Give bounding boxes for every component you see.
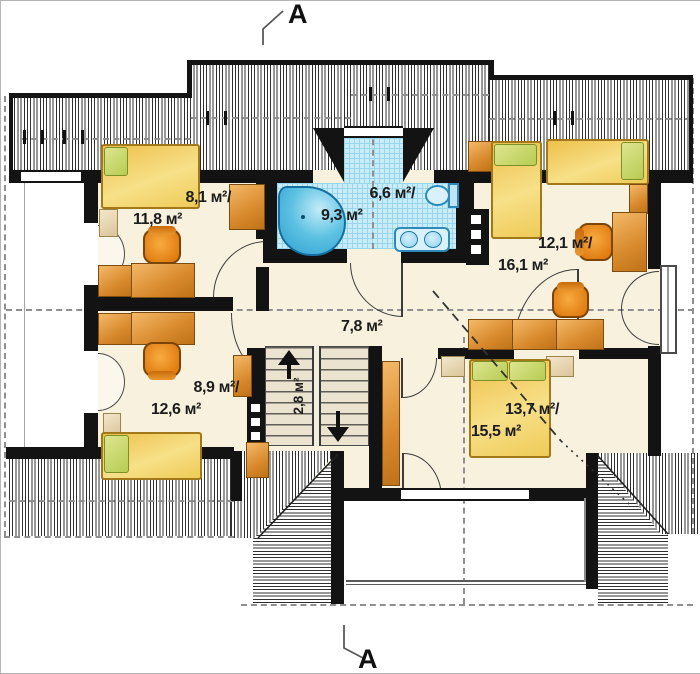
area-label-master-bedroom: 13,7 м²/ 15,5 м² — [469, 399, 563, 442]
area-label-room-top-right: 12,1 м²/ 16,1 м² — [496, 233, 596, 276]
area-value: 8,1 м²/ — [131, 187, 235, 209]
roof-line-dashed-1 — [21, 138, 191, 140]
roof-edge — [9, 93, 13, 171]
wardrobe-tall — [382, 361, 400, 486]
stairs-down-stem — [336, 411, 340, 427]
cabinet — [468, 141, 493, 172]
toilet — [425, 185, 450, 206]
wall-east — [648, 346, 661, 456]
wall-hall-west — [256, 267, 269, 311]
terrace-window — [401, 488, 529, 501]
roof-edge — [689, 75, 693, 171]
wall-top — [9, 170, 21, 183]
stairs-down-arrow — [327, 427, 349, 442]
sink-basin — [424, 231, 442, 248]
area-label-bathroom: 6,6 м²/ 9,3 м² — [319, 183, 419, 226]
eaves-floor-line — [24, 183, 25, 447]
stairs-area-label: 2,8 м² — [291, 366, 307, 426]
nightstand — [629, 184, 648, 214]
roof-window-mark — [553, 111, 574, 125]
roof-edge — [187, 60, 489, 65]
office-chair — [552, 285, 589, 318]
wall-stub — [231, 451, 242, 501]
area-label-hallway: 7,8 м² — [339, 316, 411, 338]
desk — [131, 263, 195, 298]
roof-window-mark — [23, 130, 44, 144]
sink-basin — [400, 231, 418, 248]
toilet-tank — [448, 183, 459, 208]
eaves-bottomleft-dashed — [4, 536, 234, 538]
roof-line-dashed-4 — [489, 118, 691, 120]
nightstand — [441, 356, 465, 377]
stair-rail — [312, 346, 321, 446]
eaves-bottom-dashed — [241, 604, 693, 606]
area-value: 11,8 м² — [131, 209, 235, 231]
roof-edge — [489, 60, 494, 80]
cabinet — [246, 442, 269, 478]
desk-return — [98, 313, 134, 345]
pillow — [509, 361, 546, 381]
roof-edge — [187, 60, 192, 98]
wall-west — [84, 285, 98, 351]
area-value: 9,3 м² — [319, 205, 419, 227]
wall-divider-left-rooms — [84, 297, 233, 311]
section-line-dashed — [463, 337, 465, 604]
area-value: 15,5 м² — [469, 421, 563, 443]
area-label-room-bottom-left: 8,9 м²/ 12,6 м² — [149, 377, 243, 420]
wall-east — [648, 170, 661, 269]
roof-window-mark — [369, 87, 390, 101]
desk — [612, 212, 647, 272]
wall-stair-east — [369, 346, 382, 491]
frame-line — [667, 267, 669, 352]
area-value: 16,1 м² — [496, 255, 596, 277]
floor-plan: 2,8 м² 8,1 м²/ 11,8 м² 6, — [0, 0, 700, 674]
area-label-room-top-left: 8,1 м²/ 11,8 м² — [131, 187, 235, 230]
roof-line-dashed-5 — [9, 500, 234, 502]
wall-dormer-left — [331, 451, 344, 604]
shaft-vent — [471, 215, 481, 224]
terrace-edge — [584, 498, 586, 582]
stairs-area-text: 2,8 м² — [291, 378, 306, 415]
office-chair — [143, 229, 181, 264]
shaft-vent — [251, 404, 260, 412]
desk — [131, 312, 195, 345]
wall-south — [529, 488, 586, 501]
roof-edge — [489, 75, 693, 80]
tub-drain — [301, 215, 305, 219]
desk-return — [98, 265, 134, 297]
pillow — [621, 142, 644, 180]
section-marker-top: A — [288, 0, 308, 30]
desk — [556, 319, 604, 350]
area-value: 12,1 м²/ — [496, 233, 596, 255]
door-leaf — [401, 263, 403, 317]
door-leaf — [401, 358, 403, 398]
roof-edge — [9, 93, 187, 98]
area-value: 6,6 м²/ — [319, 183, 419, 205]
area-value: 8,9 м²/ — [149, 377, 243, 399]
wall-dormer-right — [586, 453, 598, 589]
window-top-left — [21, 170, 81, 183]
pillow — [104, 147, 128, 176]
shaft-vent — [471, 245, 481, 254]
nightstand — [99, 209, 118, 237]
area-value: 7,8 м² — [339, 316, 411, 338]
pillow — [472, 361, 508, 381]
bathroom-dormer-window — [344, 126, 403, 138]
roof-window-mark — [63, 130, 84, 144]
pillow — [104, 435, 129, 473]
section-line-top — [263, 11, 283, 45]
pillow — [494, 144, 537, 166]
roof-window-mark — [206, 111, 227, 125]
cabinet — [512, 319, 557, 350]
shaft-vent — [251, 418, 260, 426]
wall-west — [84, 183, 98, 223]
stairs-up-arrow — [278, 350, 300, 365]
area-value: 13,7 м²/ — [469, 399, 563, 421]
cabinet — [468, 319, 513, 350]
shaft-vent — [251, 432, 260, 440]
section-marker-bottom: A — [358, 644, 378, 674]
shaft-vent — [471, 230, 481, 239]
terrace-railing — [346, 580, 586, 585]
eaves-left-dashed — [4, 96, 6, 537]
wall-west — [84, 413, 98, 447]
office-chair — [143, 342, 181, 377]
area-value: 12,6 м² — [149, 399, 243, 421]
